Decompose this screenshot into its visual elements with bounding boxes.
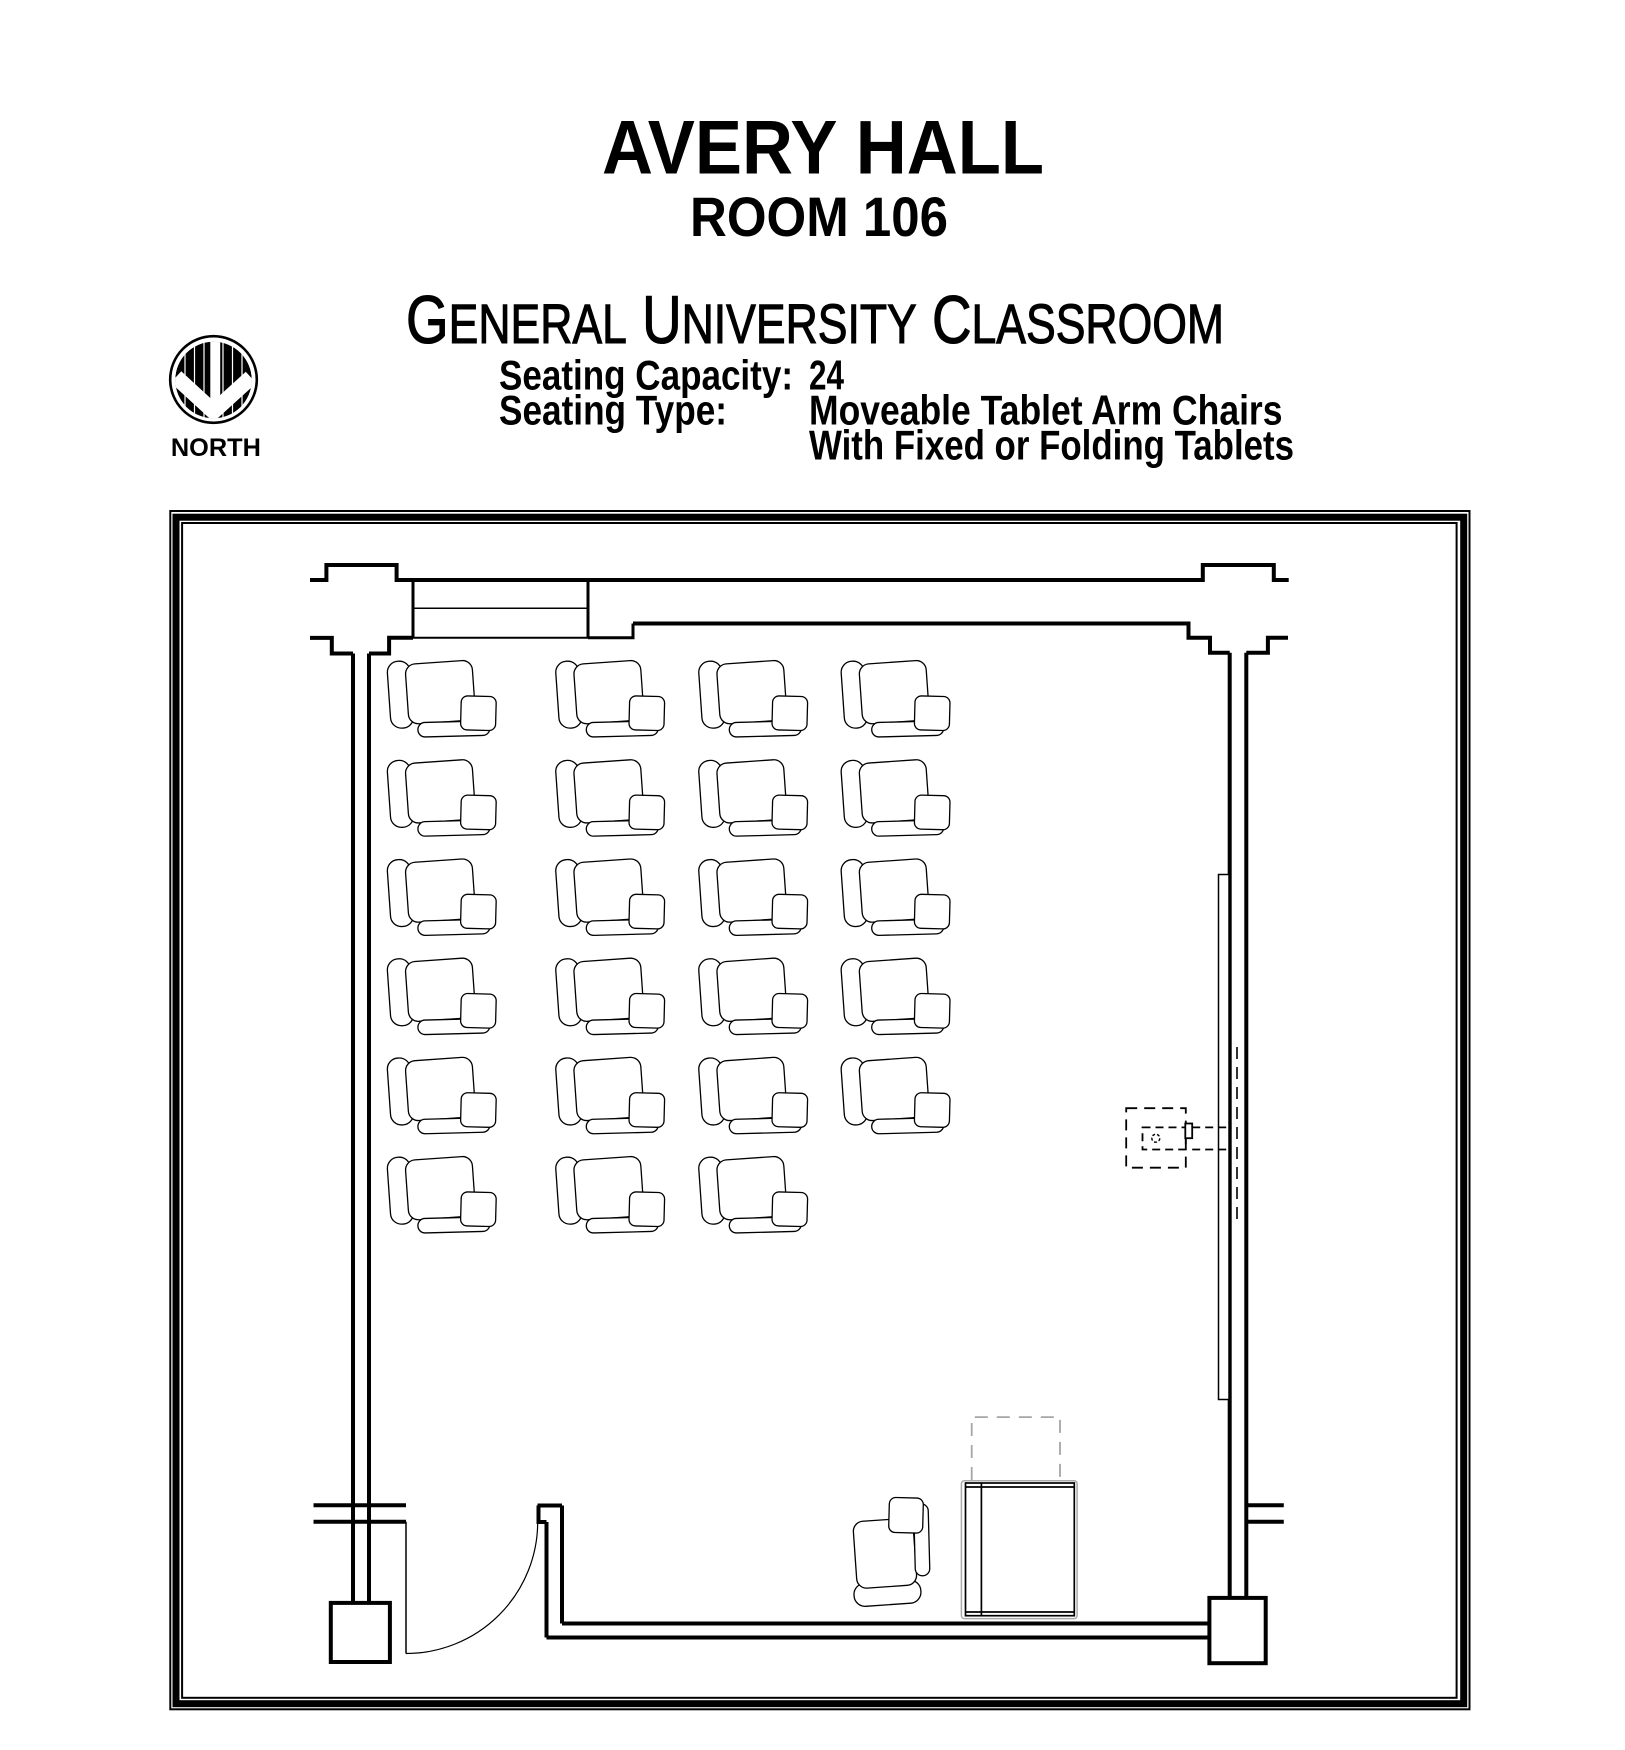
svg-text:With Fixed or Folding Tablets: With Fixed or Folding Tablets bbox=[809, 422, 1294, 469]
svg-text:AVERY HALL: AVERY HALL bbox=[602, 106, 1044, 191]
svg-text:ROOM 106: ROOM 106 bbox=[690, 185, 948, 248]
svg-text:NORTH: NORTH bbox=[171, 434, 261, 462]
svg-text:GENERAL UNIVERSITY CLASSROOM: GENERAL UNIVERSITY CLASSROOM bbox=[406, 282, 1224, 358]
svg-text:Seating Type:: Seating Type: bbox=[499, 387, 727, 434]
